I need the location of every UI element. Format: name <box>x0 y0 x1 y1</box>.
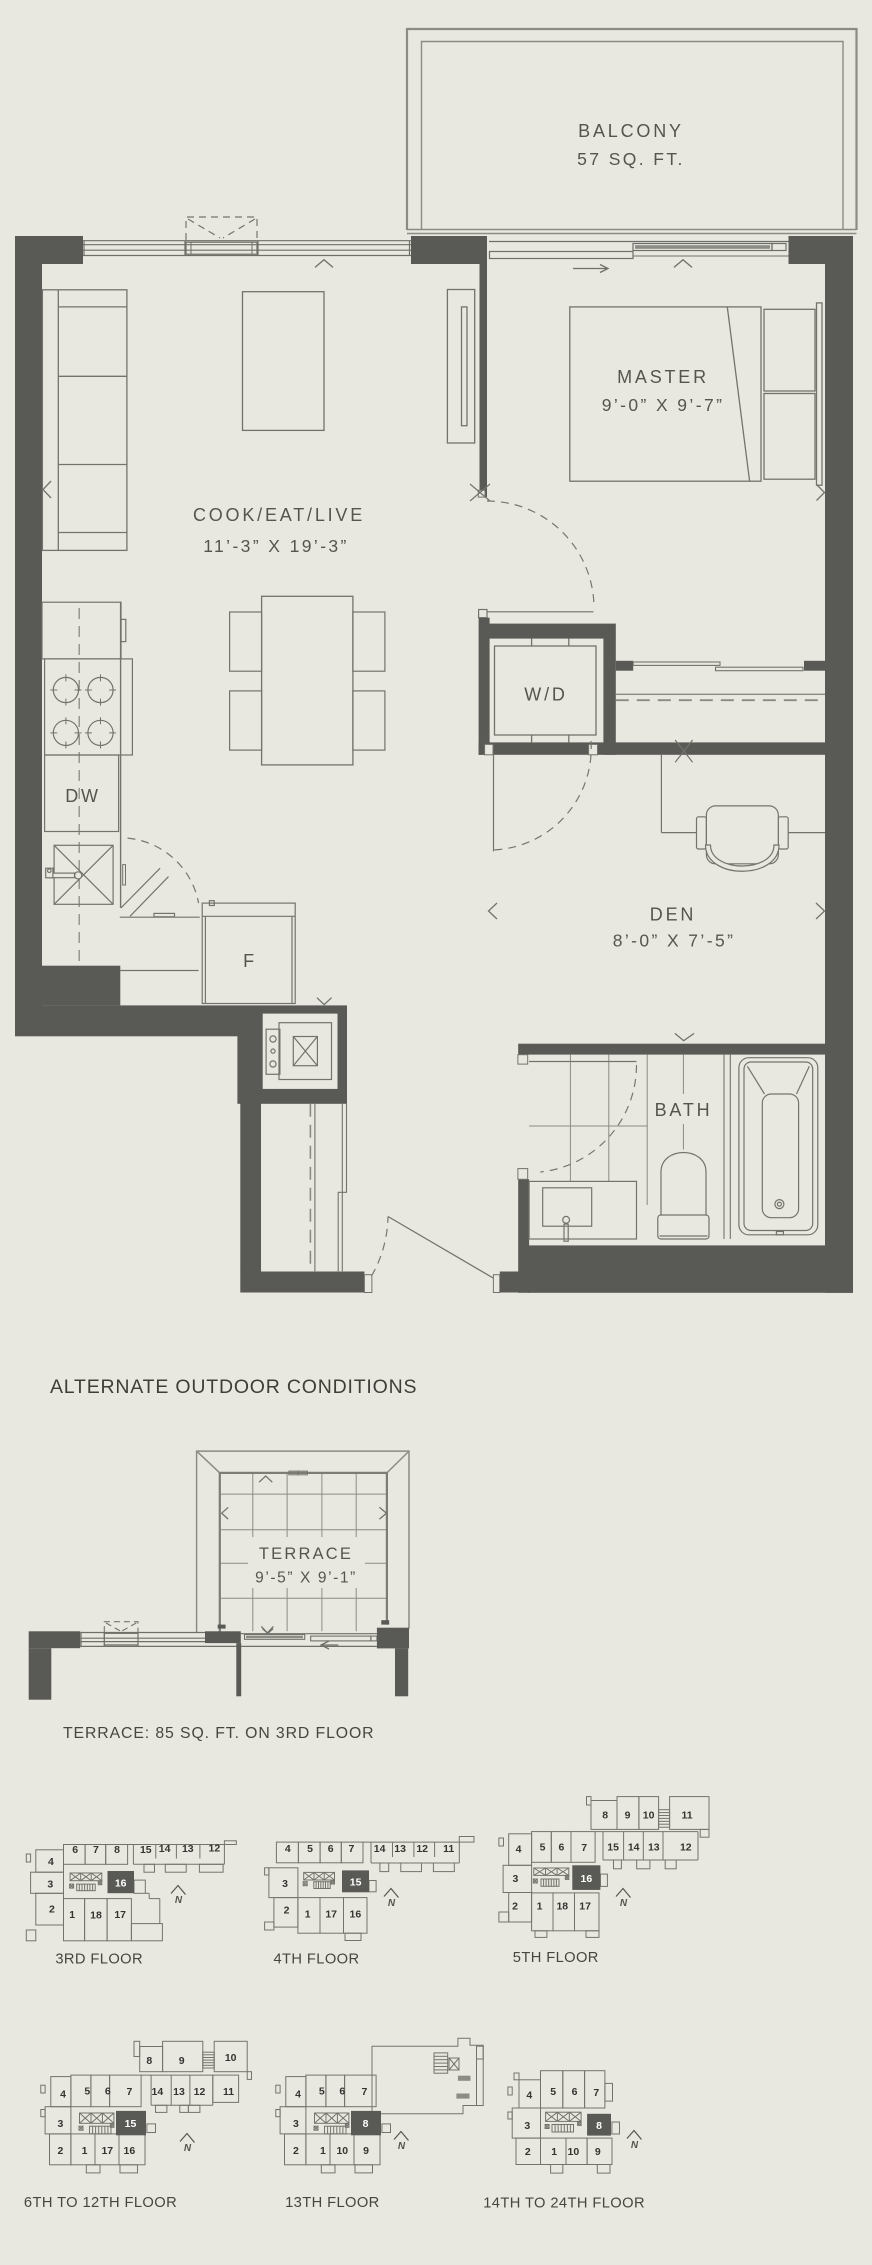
svg-text:8: 8 <box>596 2120 602 2132</box>
svg-text:4: 4 <box>295 2088 301 2100</box>
svg-text:BATH: BATH <box>655 1100 713 1120</box>
svg-text:6: 6 <box>572 2086 578 2098</box>
svg-text:7: 7 <box>581 1842 587 1854</box>
svg-text:12: 12 <box>209 1843 221 1855</box>
svg-text:8: 8 <box>602 1809 608 1821</box>
svg-text:14: 14 <box>159 1843 171 1855</box>
svg-text:N: N <box>631 2140 639 2151</box>
svg-text:ALTERNATE OUTDOOR CONDITIONS: ALTERNATE OUTDOOR CONDITIONS <box>50 1376 417 1398</box>
svg-text:10: 10 <box>643 1809 655 1821</box>
svg-text:17: 17 <box>579 1900 591 1912</box>
svg-text:9: 9 <box>363 2145 369 2157</box>
svg-text:8: 8 <box>146 2055 152 2067</box>
svg-text:3: 3 <box>282 1878 288 1890</box>
svg-text:3RD FLOOR: 3RD FLOOR <box>55 1952 143 1968</box>
svg-text:16: 16 <box>124 2145 136 2157</box>
svg-text:13: 13 <box>182 1843 194 1855</box>
svg-text:3: 3 <box>512 1873 518 1885</box>
svg-text:17: 17 <box>325 1908 337 1920</box>
svg-text:4: 4 <box>516 1844 522 1856</box>
svg-text:N: N <box>388 1898 396 1909</box>
svg-text:9’-0” X 9’-7”: 9’-0” X 9’-7” <box>602 395 725 415</box>
svg-text:1: 1 <box>82 2145 88 2157</box>
svg-text:COOK/EAT/LIVE: COOK/EAT/LIVE <box>193 505 365 525</box>
svg-text:2: 2 <box>293 2145 299 2157</box>
svg-text:TERRACE: TERRACE <box>259 1545 353 1563</box>
svg-text:3: 3 <box>57 2118 63 2130</box>
svg-text:1: 1 <box>305 1908 311 1920</box>
svg-text:17: 17 <box>101 2145 113 2157</box>
svg-text:13: 13 <box>173 2086 185 2098</box>
svg-text:2: 2 <box>57 2145 63 2157</box>
svg-text:11: 11 <box>443 1843 454 1855</box>
svg-text:12: 12 <box>680 1841 692 1853</box>
svg-text:16: 16 <box>581 1873 593 1885</box>
svg-text:11: 11 <box>682 1809 693 1821</box>
svg-text:10: 10 <box>336 2145 348 2157</box>
svg-text:2: 2 <box>49 1904 55 1916</box>
svg-text:BALCONY: BALCONY <box>578 121 684 141</box>
svg-text:13TH FLOOR: 13TH FLOOR <box>285 2195 380 2211</box>
svg-text:2: 2 <box>284 1905 290 1917</box>
svg-text:8: 8 <box>114 1844 120 1856</box>
svg-text:11: 11 <box>223 2086 234 2098</box>
svg-text:N: N <box>398 2141 406 2152</box>
svg-text:2: 2 <box>512 1900 518 1912</box>
svg-text:5: 5 <box>307 1843 313 1855</box>
svg-text:14: 14 <box>374 1843 386 1855</box>
svg-text:MASTER: MASTER <box>617 367 709 387</box>
svg-text:18: 18 <box>556 1900 568 1912</box>
svg-text:5: 5 <box>84 2086 90 2098</box>
svg-text:N: N <box>175 1895 183 1906</box>
svg-text:3: 3 <box>293 2118 299 2130</box>
svg-text:10: 10 <box>225 2052 237 2064</box>
svg-text:4TH FLOOR: 4TH FLOOR <box>273 1952 359 1968</box>
svg-text:7: 7 <box>93 1844 99 1856</box>
svg-text:17: 17 <box>114 1909 126 1921</box>
svg-text:W/D: W/D <box>524 685 567 705</box>
svg-text:15: 15 <box>140 1844 152 1856</box>
svg-text:F: F <box>243 951 257 971</box>
svg-text:10: 10 <box>568 2146 580 2158</box>
svg-text:6: 6 <box>105 2086 111 2098</box>
svg-text:3: 3 <box>524 2120 530 2132</box>
svg-text:5: 5 <box>550 2086 556 2098</box>
svg-text:13: 13 <box>394 1843 406 1855</box>
svg-text:57 SQ. FT.: 57 SQ. FT. <box>577 149 685 169</box>
svg-text:6: 6 <box>72 1844 78 1856</box>
svg-text:1: 1 <box>537 1900 543 1912</box>
svg-text:15: 15 <box>350 1877 362 1889</box>
svg-text:18: 18 <box>90 1909 102 1921</box>
svg-text:4: 4 <box>526 2090 532 2102</box>
svg-text:8: 8 <box>363 2118 369 2130</box>
svg-text:12: 12 <box>416 1843 428 1855</box>
svg-text:13: 13 <box>648 1841 660 1853</box>
svg-text:9: 9 <box>595 2146 601 2158</box>
svg-text:7: 7 <box>593 2087 599 2099</box>
svg-text:6TH TO 12TH FLOOR: 6TH TO 12TH FLOOR <box>24 2195 177 2211</box>
svg-text:15: 15 <box>607 1841 619 1853</box>
svg-text:7: 7 <box>348 1843 354 1855</box>
svg-text:7: 7 <box>126 2086 132 2098</box>
svg-text:16: 16 <box>350 1908 362 1920</box>
svg-text:9: 9 <box>625 1809 631 1821</box>
svg-text:9’-5” X 9’-1”: 9’-5” X 9’-1” <box>255 1570 357 1587</box>
svg-text:5: 5 <box>540 1841 546 1853</box>
svg-text:6: 6 <box>558 1841 564 1853</box>
svg-text:16: 16 <box>115 1877 127 1889</box>
svg-text:8’-0” X 7’-5”: 8’-0” X 7’-5” <box>613 931 736 951</box>
svg-text:14TH TO 24TH FLOOR: 14TH TO 24TH FLOOR <box>483 2196 645 2212</box>
svg-text:3: 3 <box>47 1879 53 1891</box>
svg-text:12: 12 <box>194 2086 206 2098</box>
svg-text:4: 4 <box>48 1856 54 1868</box>
svg-text:4: 4 <box>60 2088 66 2100</box>
svg-text:14: 14 <box>628 1841 640 1853</box>
svg-text:6: 6 <box>328 1843 334 1855</box>
svg-text:5TH FLOOR: 5TH FLOOR <box>513 1950 599 1966</box>
svg-text:1: 1 <box>551 2146 557 2158</box>
svg-text:2: 2 <box>525 2146 531 2158</box>
svg-text:9: 9 <box>179 2055 185 2067</box>
svg-text:N: N <box>184 2143 192 2154</box>
svg-text:6: 6 <box>339 2086 345 2098</box>
svg-text:15: 15 <box>125 2118 137 2130</box>
svg-text:1: 1 <box>69 1909 75 1921</box>
svg-text:TERRACE: 85 SQ. FT. ON 3RD FLO: TERRACE: 85 SQ. FT. ON 3RD FLOOR <box>63 1725 374 1742</box>
svg-text:14: 14 <box>152 2086 164 2098</box>
svg-text:DEN: DEN <box>650 905 696 925</box>
svg-text:1: 1 <box>320 2145 326 2157</box>
svg-text:DW: DW <box>65 786 101 806</box>
svg-text:N: N <box>620 1898 628 1909</box>
svg-text:4: 4 <box>285 1843 291 1855</box>
svg-text:5: 5 <box>319 2086 325 2098</box>
svg-text:7: 7 <box>361 2086 367 2098</box>
svg-text:11’-3” X 19’-3”: 11’-3” X 19’-3” <box>203 536 349 556</box>
